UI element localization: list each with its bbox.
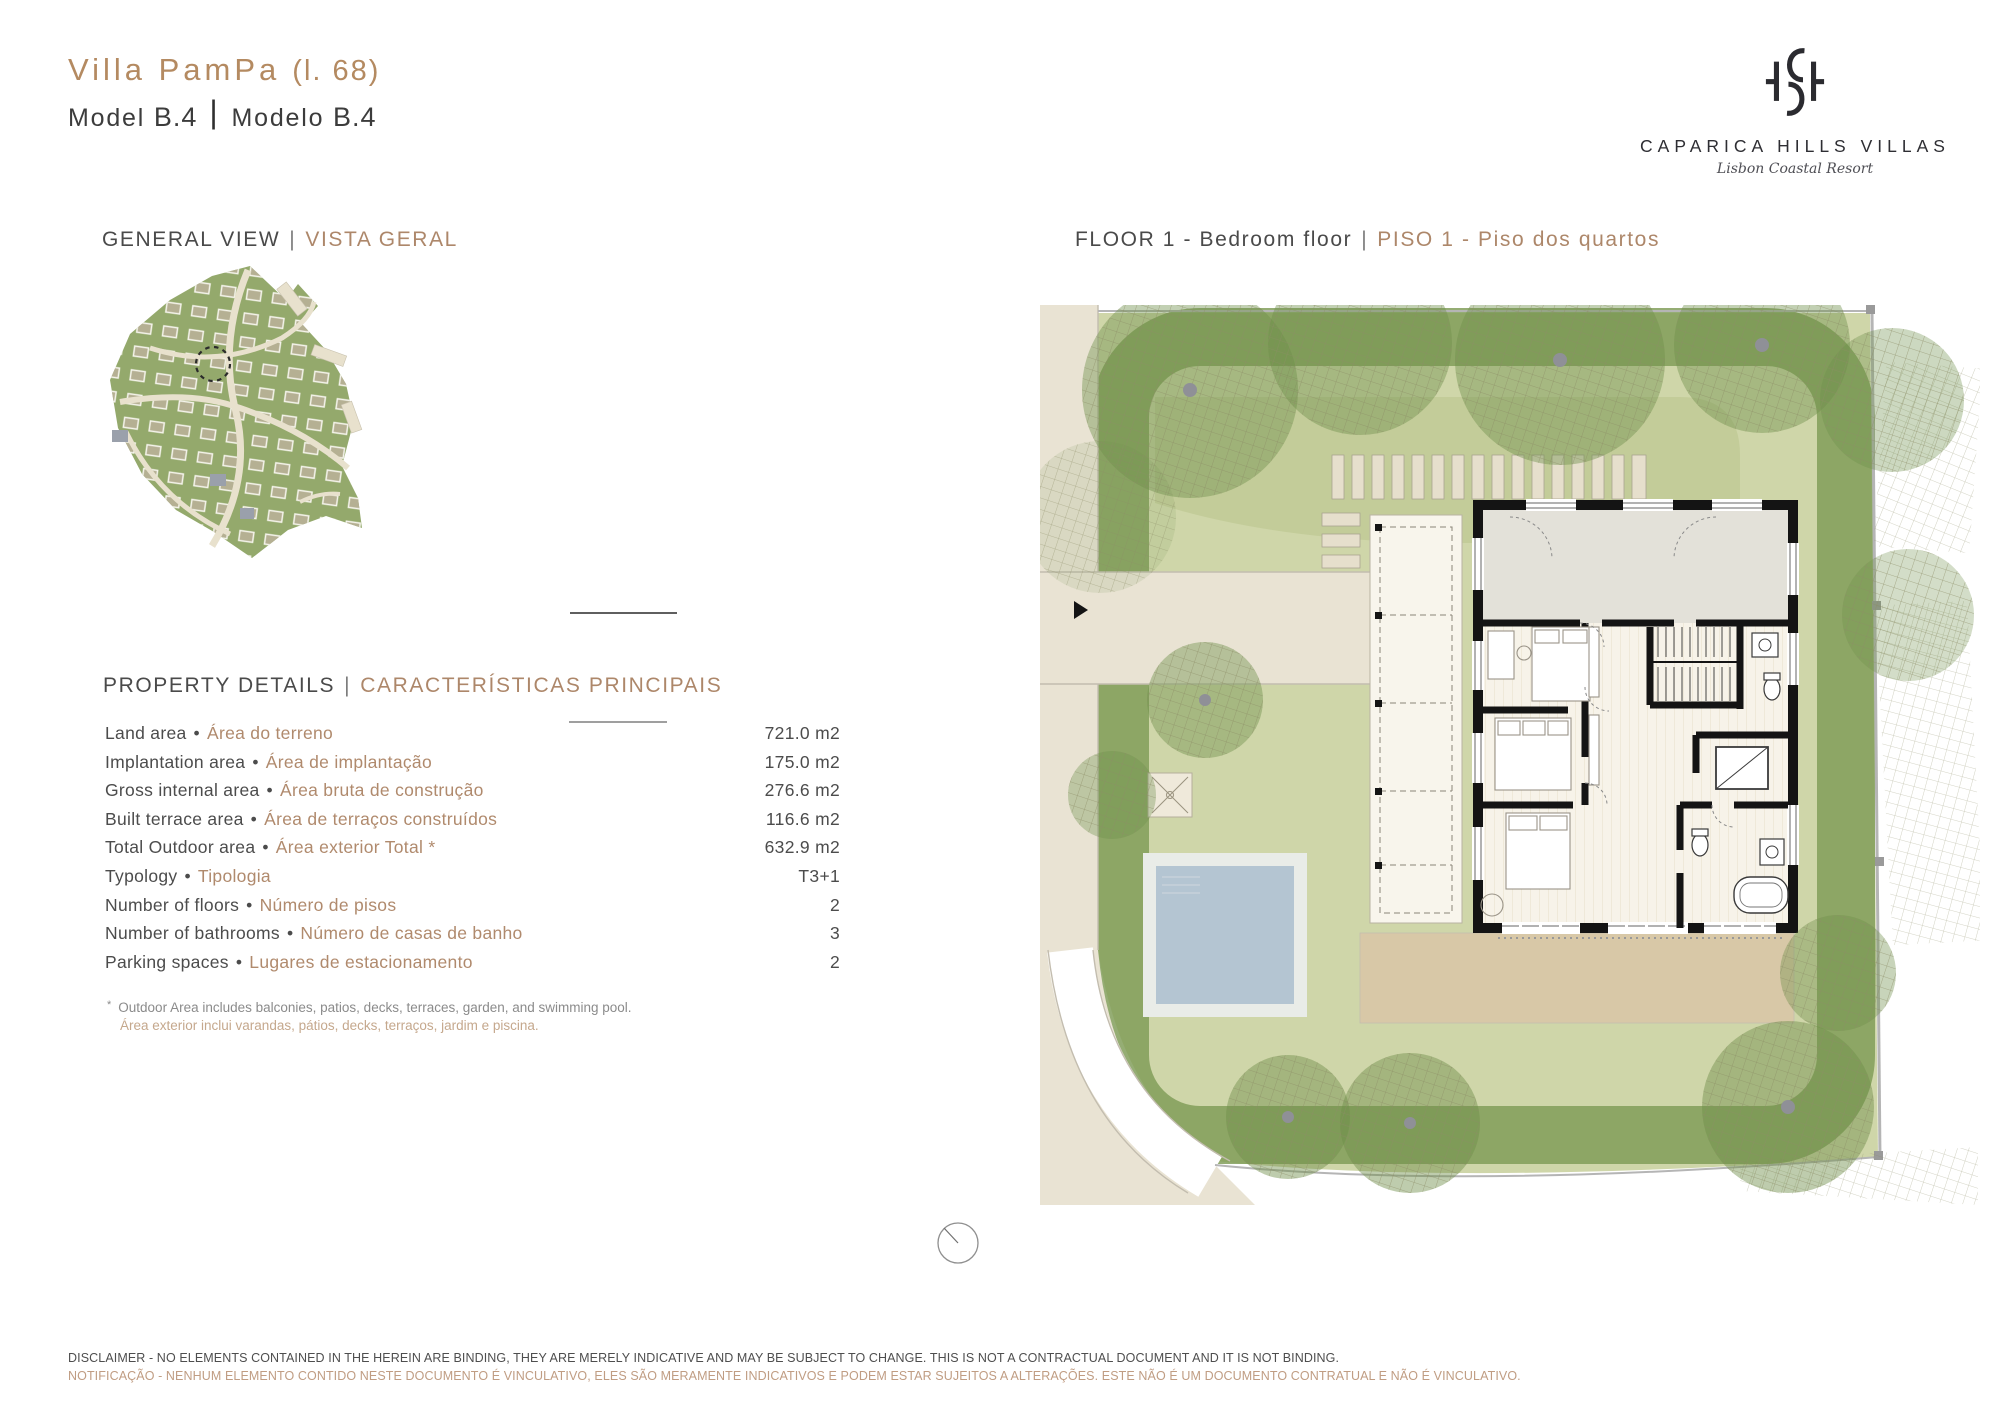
row-label-pt: Tipologia [198,866,271,887]
row-value: 3 [830,923,840,944]
row-label-pt: Área do terreno [207,723,333,744]
row-value: T3+1 [798,866,840,887]
row-label-pt: Área exterior Total * [276,837,436,858]
bullet: • [246,895,252,916]
row-label-en: Built terrace area [105,809,244,830]
row-label-en: Implantation area [105,752,245,773]
bullet: • [287,923,293,944]
floor-heading-pt: PISO 1 - Piso dos quartos [1377,228,1660,251]
bullet: • [262,837,268,858]
footnote-en: Outdoor Area includes balconies, patios,… [118,1000,631,1015]
table-row: Parking spaces • Lugares de estacionamen… [105,952,840,981]
villa-lot-number: (l. 68) [292,55,380,87]
bullet: • [267,780,273,801]
row-label-pt: Lugares de estacionamento [249,952,472,973]
heading-separator: | [289,228,296,251]
outdoor-area-footnote: *Outdoor Area includes balconies, patios… [107,996,632,1035]
row-label-en: Number of bathrooms [105,923,280,944]
floor-plan-drawing [1040,305,1980,1205]
brand-name: CAPARICA HILLS VILLAS [1630,136,1960,157]
general-view-pt: VISTA GERAL [305,228,458,251]
row-value: 2 [830,895,840,916]
bullet: • [236,952,242,973]
property-details-pt: CARACTERÍSTICAS PRINCIPAIS [360,674,722,697]
model-separator: | [209,94,219,130]
row-label-en: Typology [105,866,177,887]
heading-separator: | [1361,228,1368,251]
row-label-pt: Área de terraços construídos [264,809,497,830]
floor-heading: FLOOR 1 - Bedroom floor|PISO 1 - Piso do… [1075,228,1660,252]
row-label-en: Total Outdoor area [105,837,255,858]
row-label-en: Gross internal area [105,780,260,801]
model-label-en: Model [68,104,145,132]
brand-tagline: Lisbon Coastal Resort [1630,161,1960,177]
brochure-page: Villa PamPa(l. 68) Model B.4|Modelo B.4 … [0,0,2000,1410]
disclaimer-pt: NOTIFICAÇÃO - NENHUM ELEMENTO CONTIDO NE… [68,1368,1521,1386]
bullet: • [184,866,190,887]
ch-monogram-icon [1758,42,1832,122]
bullet: • [194,723,200,744]
row-label-en: Number of floors [105,895,239,916]
disclaimer: DISCLAIMER - NO ELEMENTS CONTAINED IN TH… [68,1350,1521,1385]
swimming-pool [1156,866,1294,1004]
general-view-en: GENERAL VIEW [102,228,280,251]
row-label-pt: Área bruta de construção [280,780,484,801]
table-row: Total Outdoor area • Área exterior Total… [105,837,840,866]
property-details-heading: PROPERTY DETAILS|CARACTERÍSTICAS PRINCIP… [103,674,722,698]
table-row: Number of bathrooms • Número de casas de… [105,923,840,952]
table-row: Built terrace area • Área de terraços co… [105,809,840,838]
row-value: 116.6 m2 [766,809,840,830]
table-row: Number of floors • Número de pisos 2 [105,895,840,924]
row-label-pt: Número de pisos [260,895,397,916]
table-row: Land area • Área do terreno 721.0 m2 [105,723,840,752]
heading-separator: | [344,674,351,697]
bullet: • [252,752,258,773]
villa-name: Villa PamPa [68,52,280,87]
row-label-en: Parking spaces [105,952,229,973]
villa-title-block: Villa PamPa(l. 68) Model B.4|Modelo B.4 [68,52,380,134]
bullet: • [251,809,257,830]
row-value: 721.0 m2 [765,723,840,744]
row-value: 276.6 m2 [765,780,840,801]
table-row: Gross internal area • Área bruta de cons… [105,780,840,809]
general-view-heading: GENERAL VIEW|VISTA GERAL [102,228,458,252]
row-value: 2 [830,952,840,973]
property-details-en: PROPERTY DETAILS [103,674,335,697]
page-title: Villa PamPa(l. 68) [68,52,380,88]
row-value: 175.0 m2 [765,752,840,773]
model-value-pt: B.4 [333,102,377,132]
brand-logo: CAPARICA HILLS VILLAS Lisbon Coastal Res… [1630,42,1960,177]
house [1472,499,1799,938]
north-indicator-icon [935,1220,981,1266]
divider-line [570,612,677,614]
pergola-deck [1370,515,1462,923]
model-label-pt: Modelo [232,104,325,132]
model-line: Model B.4|Modelo B.4 [68,97,380,134]
row-label-pt: Número de casas de banho [300,923,522,944]
footnote-pt: Área exterior inclui varandas, pátios, d… [120,1018,539,1033]
row-label-pt: Área de implantação [266,752,432,773]
floor-heading-en: FLOOR 1 - Bedroom floor [1075,228,1352,251]
resort-site-map [90,262,390,572]
terrace [1360,933,1794,1023]
row-value: 632.9 m2 [765,837,840,858]
disclaimer-en: DISCLAIMER - NO ELEMENTS CONTAINED IN TH… [68,1350,1521,1368]
table-row: Implantation area • Área de implantação … [105,752,840,781]
row-label-en: Land area [105,723,187,744]
model-value-en: B.4 [154,102,198,132]
footnote-marker: * [107,999,111,1011]
property-details-table: Land area • Área do terreno 721.0 m2 Imp… [105,723,840,980]
table-row: Typology • Tipologia T3+1 [105,866,840,895]
